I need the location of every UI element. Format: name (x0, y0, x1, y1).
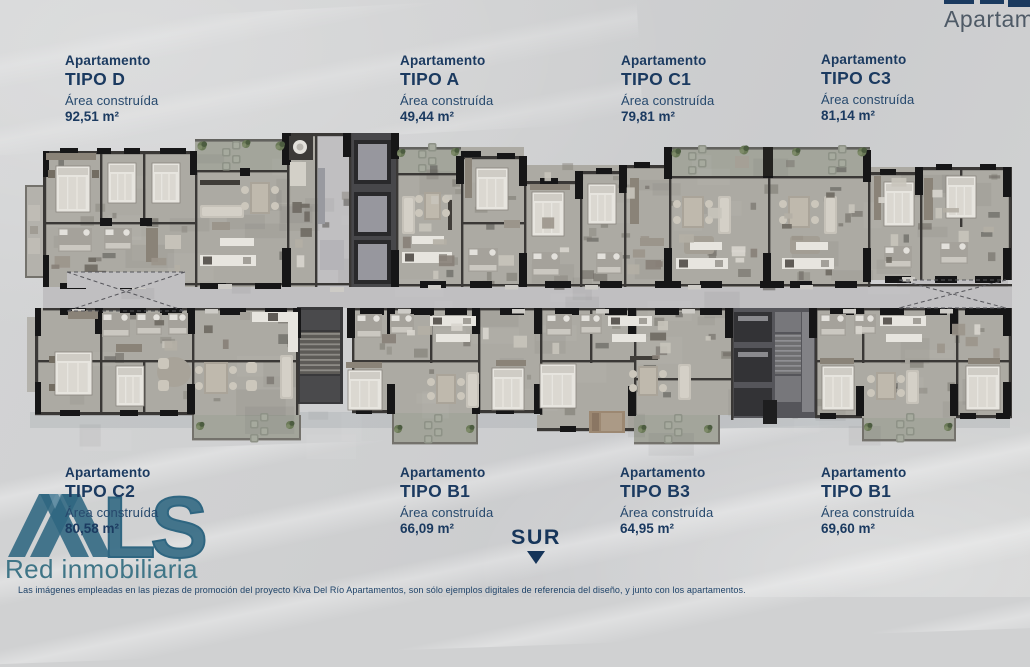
svg-text:Red inmobiliaria: Red inmobiliaria (5, 554, 198, 584)
